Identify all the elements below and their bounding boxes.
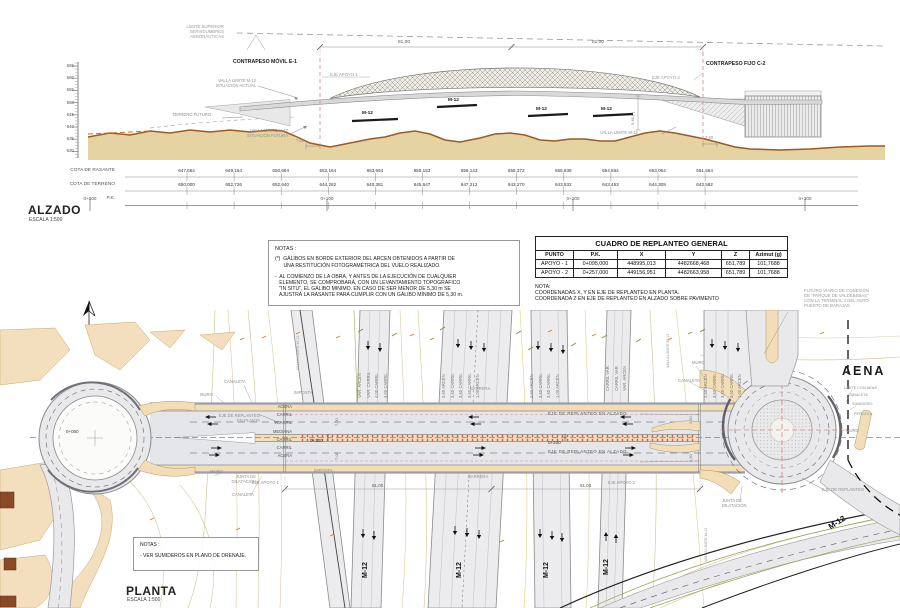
plan-dim-700: 7,00 — [334, 444, 339, 460]
notas-item-1: (*) GÁLIBOS EN BORDE EXTERIOR DEL ARCEN … — [275, 256, 513, 268]
lane-labels: 2,50 ARCÉN3,50 CARRIL3,50 CARRIL3,50 CAR… — [440, 352, 483, 398]
drawing-sheet: LIMITE SUPERIOR SERVIDUMBRES AERONÁUTICA… — [0, 0, 900, 608]
pk-mark: 0+000 — [76, 196, 104, 202]
col-z: Z — [722, 251, 750, 260]
notas-item: - VER SUMIDEROS EN PLANO DE DRENAJE. — [140, 553, 252, 559]
notas-planta-box: NOTAS : - VER SUMIDEROS EN PLANO DE DREN… — [133, 537, 259, 571]
valla-futura-label: VALLA LIMITE M-12 SITUACIÓN FUTURA — [228, 128, 288, 138]
span-dim-left: 81,00 — [398, 40, 410, 46]
col-azimut: Azimut (g) — [750, 251, 788, 260]
contrapeso-movil-label: CONTRAPESO MÓVIL E-1 — [233, 59, 297, 65]
terreno-values: 650,000652,726652,640644,262640,381645,6… — [163, 182, 729, 187]
cota-rasante-label: COTA DE RASANTE — [35, 168, 115, 174]
plan-dim-81-right: 81,00 — [580, 483, 591, 488]
lane-labels: CARRIL VAR.CARRIL VAR.VAR. ARCÉN — [604, 345, 630, 391]
alzado-scale: ESCALA 1:500 — [29, 217, 62, 223]
m12-label: M-12 — [601, 107, 612, 113]
table-row: APOYO - 10+095,000448995,013 4482668,468… — [536, 260, 788, 269]
futuro-viario-label: FUTURO VIARIO DE CONEXIÓN DE "PARQUE DE … — [804, 288, 870, 308]
eje-replanteo-alzado-label: EJE DE REPLANTEO EN ALZADO — [548, 411, 627, 416]
plan-dim-250: 2,50 — [688, 446, 693, 462]
m12-label: M-12 — [448, 98, 459, 104]
lane-labels: VAR. ARCÉNVAR. CARRIL4,00 CARRIL4,00 CAR… — [356, 352, 390, 398]
canaleta-label: CANALETA — [848, 393, 868, 398]
notas-alzado-box: NOTAS : (*) GÁLIBOS EN BORDE EXTERIOR DE… — [268, 240, 520, 306]
pk-mark: 0+300 — [791, 196, 819, 202]
canaleta-label: CANALETA — [232, 492, 254, 497]
eje-apoyo-1-label: EJE APOYO 1 — [330, 72, 358, 77]
dim-750-right: 7,50 — [705, 135, 713, 140]
cuadro-nota-2: COORDENADA Z EN EJE DE REPLANTEO EN ALZA… — [535, 296, 719, 302]
station-label: 0+200 — [548, 440, 561, 445]
m12-road-label: M-12 — [603, 545, 610, 575]
cuadro-title: CUADRO DE REPLANTEO GENERAL — [536, 237, 788, 251]
station-label: 0+000 — [66, 429, 79, 434]
valla-limite-label: VALLA LIMITE M-12 — [296, 330, 300, 370]
m12-road-label: M-12 — [362, 548, 369, 578]
lane-labels: 2,50 ARCÉN3,50 CARRIL3,50 CARRIL1,00 ARC… — [528, 352, 562, 398]
junta-dilatacion-label: JUNTA DE DILATACIÓN — [216, 474, 256, 484]
notas-item-2: - AL COMIENZO DE LA OBRA, Y ANTES DE LA … — [275, 274, 513, 298]
m12-label: M-12 — [362, 111, 373, 117]
sumidero-label: SUMIDERO — [852, 402, 872, 407]
terreno-futuro-label: TERRENO FUTURO — [172, 112, 211, 117]
valla-actual-label: VALLA LIMITE M-12 SITUACIÓN ACTUAL — [196, 78, 256, 88]
notas-title: NOTAS : — [140, 542, 252, 548]
pk-mark: 0+200 — [559, 196, 587, 202]
barrera-label: BARRERA — [468, 474, 488, 479]
span-dim-right: 81,00 — [592, 40, 604, 46]
dim-750-left: 7,50 — [296, 138, 304, 143]
junta-dilatacion-label: JUNTA DE DILATACIÓN — [722, 498, 747, 508]
canaleta-label: CANALETA — [224, 379, 246, 384]
valla-limite-label: VALLA LIMITE M-12 — [600, 130, 638, 135]
aena-label: AENA — [842, 364, 885, 379]
col-y: Y — [666, 251, 722, 260]
imposta-label: IMPOSTA — [314, 468, 333, 473]
plan-dim-81-left: 81,00 — [372, 483, 383, 488]
galibo-dim: 5,45 (*) — [630, 101, 635, 125]
pk-mark: 0+100 — [313, 196, 341, 202]
imposta-label: IMPOSTA — [294, 390, 313, 395]
station-label: 0+100 — [310, 438, 323, 443]
plan-dim-700: 7,00 — [334, 410, 339, 426]
eje-apoyo-1-plan-label: EJE APOYO 1 — [252, 480, 279, 485]
lane-labels: 2,50 ARCÉN3,50 CARRIL3,50 CARRIL3,50 CAR… — [702, 352, 745, 398]
table-row: APOYO - 20+257,000449156,951 4482663,958… — [536, 269, 788, 278]
limite-superior-label: LIMITE SUPERIOR SERVIDUMBRES AERONÁUTICA… — [160, 24, 224, 39]
eje-apoyo-2-label: EJE APOYO 2 — [652, 75, 680, 80]
carriles-stack: ACERACARRILCARRILMEDIANACARRILCARRILACER… — [252, 403, 292, 460]
valla-limite-label: VALLA LIMITE M-12 — [704, 522, 708, 562]
contrapeso-fijo-label: CONTRAPESO FIJO C-2 — [706, 61, 765, 67]
col-pk: P.K. — [574, 251, 618, 260]
m12-label: M-12 — [536, 107, 547, 113]
canaleta-label: CANALETA — [678, 378, 700, 383]
m12-road-label: M-12 — [456, 548, 463, 578]
plan-dim-250: 2,50 — [688, 408, 693, 424]
eje-apoyo-2-plan-label: EJE APOYO 2 — [608, 480, 635, 485]
planta-scale: ESCALA 1:500 — [127, 597, 160, 603]
limite-aena-label: LIMITE CON AENA — [844, 386, 877, 391]
ruler-labels: 665660655650645640635630 — [56, 63, 74, 161]
rasante-values: 647,664649,164650,664652,164653,664655,1… — [163, 168, 729, 173]
cota-terreno-label: COTA DE TERRENO — [35, 182, 115, 188]
cuadro-replanteo-table: CUADRO DE REPLANTEO GENERAL PUNTO P.K. X… — [535, 236, 788, 278]
muro-label: MURO — [846, 428, 859, 433]
muro-label: MURO — [200, 392, 213, 397]
eje-replanteo-alzado-label: EJE DE REPLANTEO EN ALZADO — [548, 449, 627, 454]
alzado-title: ALZADO — [28, 203, 81, 217]
pergola-label: PERGOLA — [854, 412, 872, 417]
alzado-drawing — [0, 0, 900, 232]
col-x: X — [618, 251, 666, 260]
valla-limite-label: VALLA LIMITE M-12 — [666, 328, 670, 368]
planta-title: PLANTA — [126, 584, 177, 598]
eje-replanteo-label: EJE DE REPLANTEO — [822, 487, 864, 492]
notas-title: NOTAS : — [275, 246, 513, 252]
m12-road-label: M-12 — [543, 548, 550, 578]
col-punto: PUNTO — [536, 251, 574, 260]
